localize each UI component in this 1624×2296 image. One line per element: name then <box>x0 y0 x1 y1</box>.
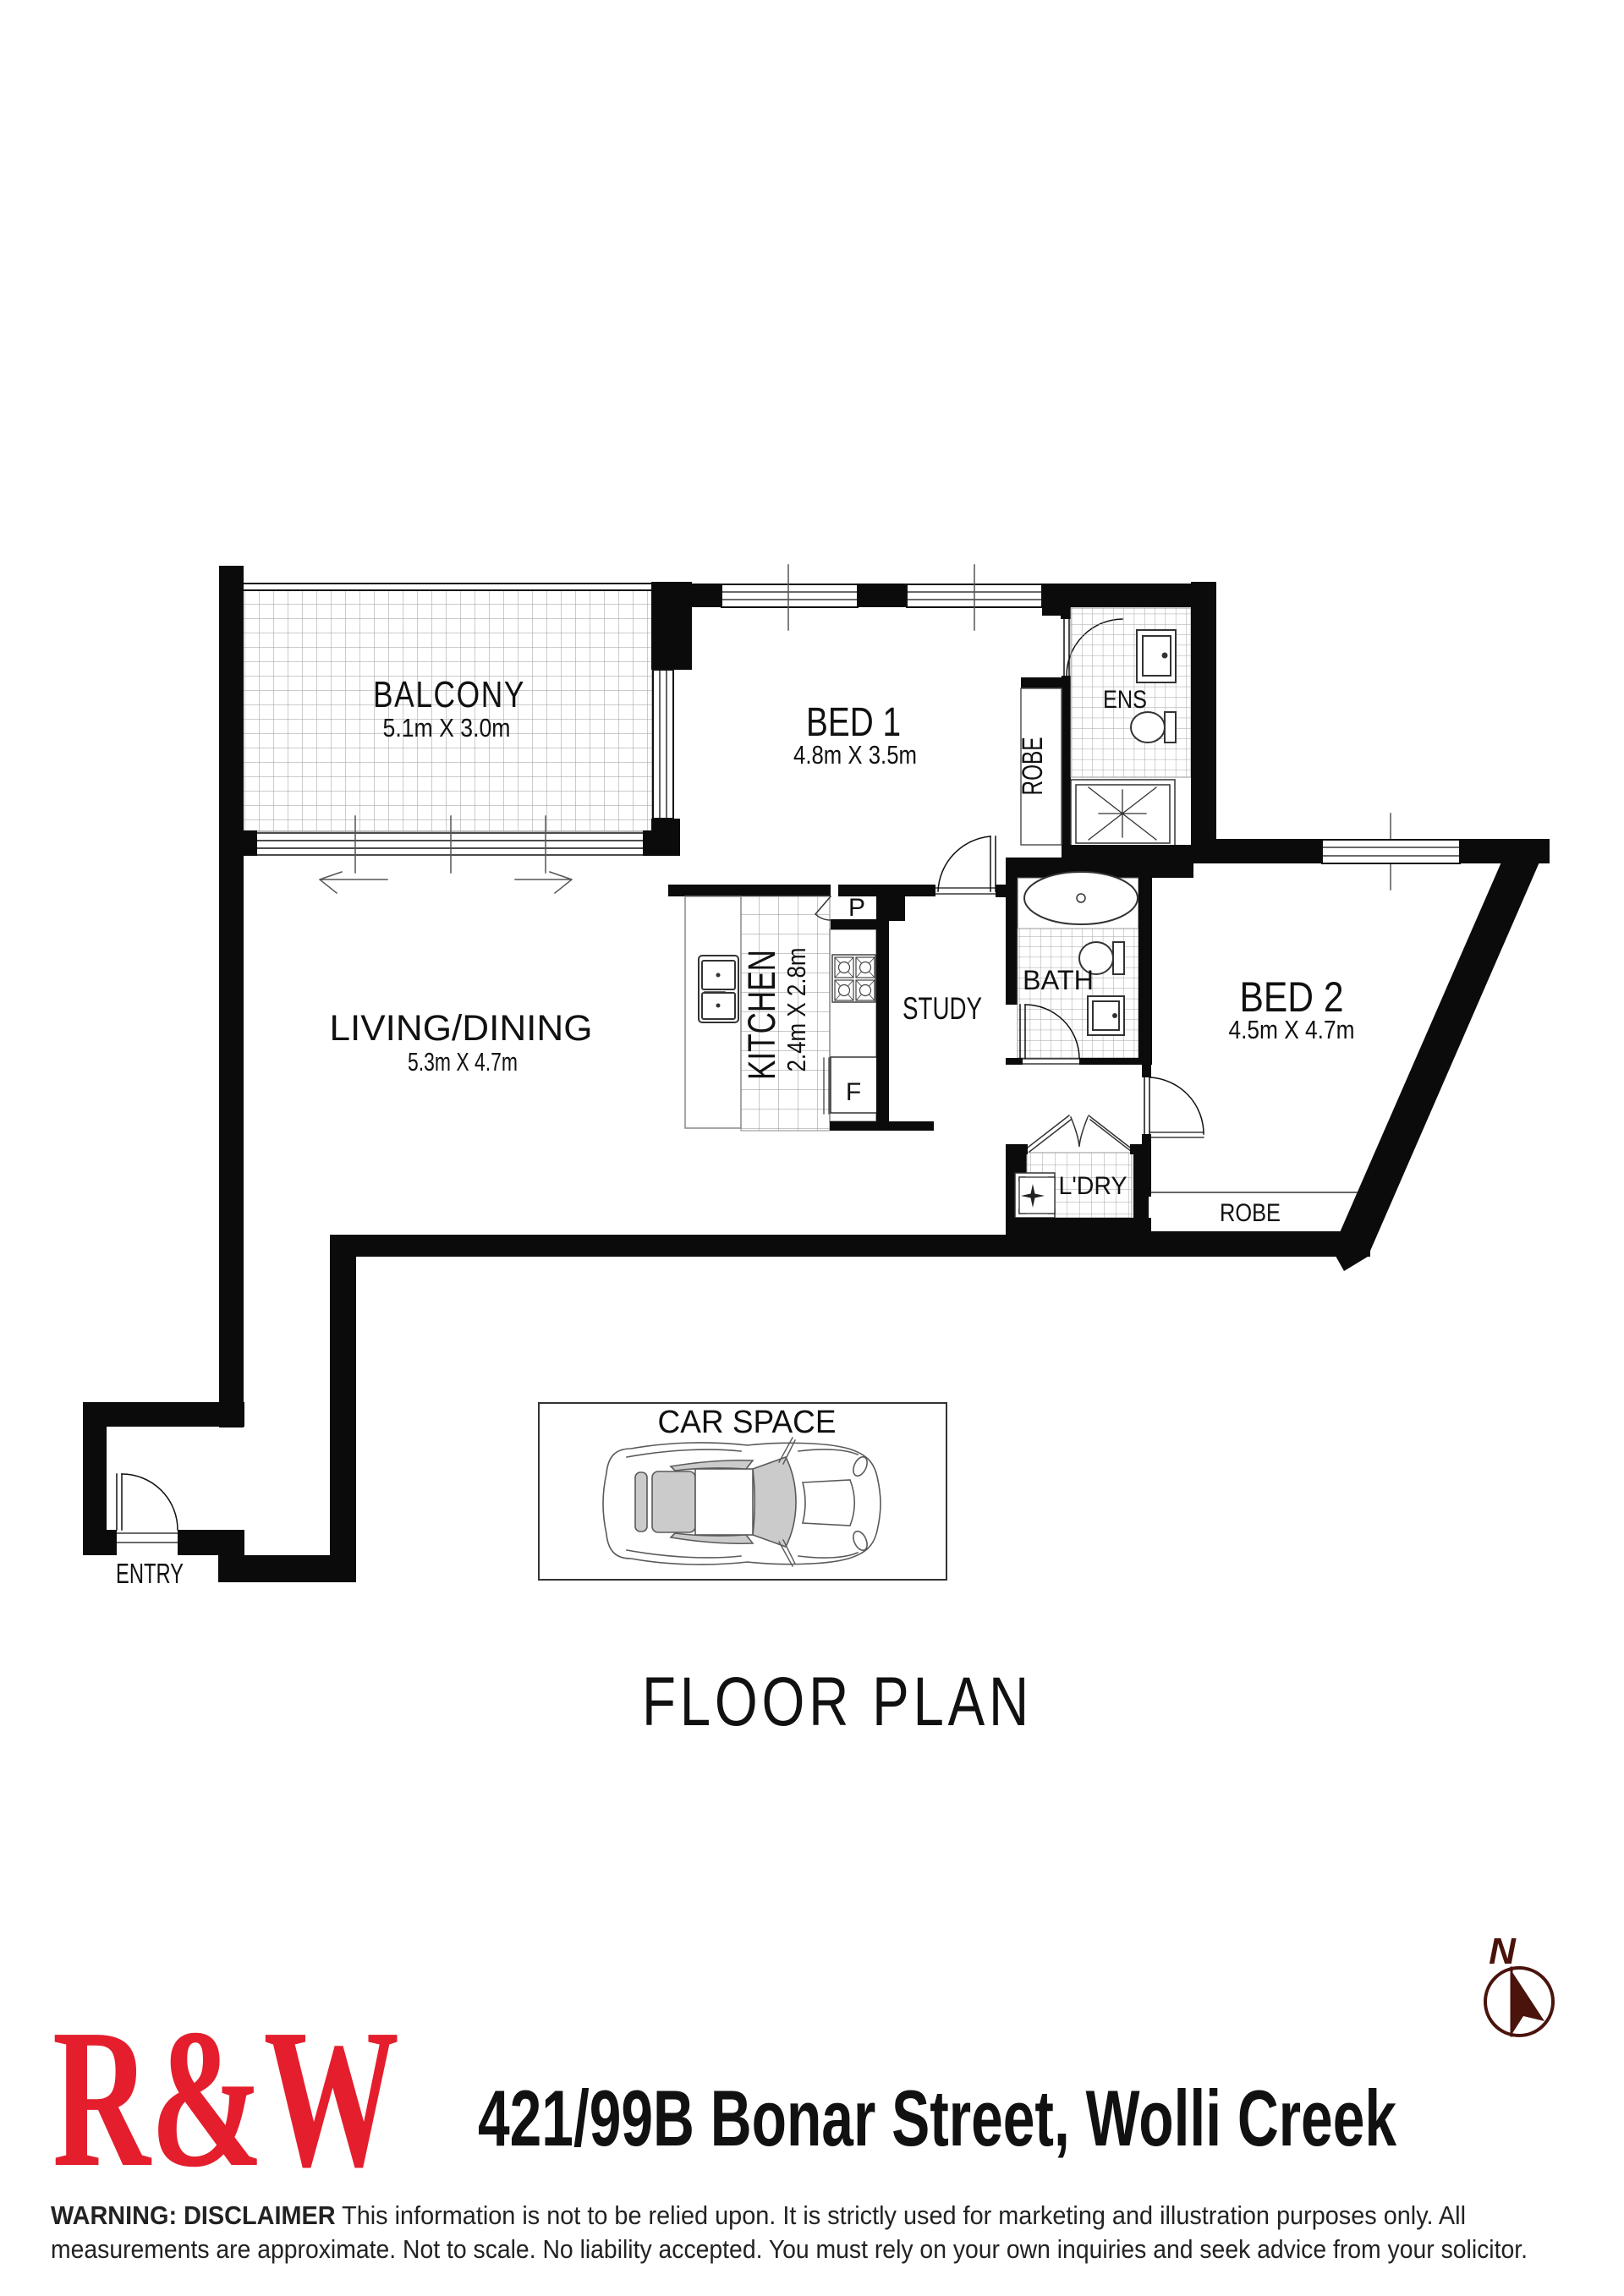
svg-text:BED 1: BED 1 <box>806 700 901 745</box>
svg-text:CAR SPACE: CAR SPACE <box>658 1405 837 1440</box>
svg-text:R&W: R&W <box>52 1988 399 2208</box>
svg-text:5.1m X 3.0m: 5.1m X 3.0m <box>383 713 511 743</box>
svg-text:ENTRY: ENTRY <box>116 1558 184 1589</box>
svg-text:4.8m X 3.5m: 4.8m X 3.5m <box>793 740 917 770</box>
svg-text:2.4m X 2.8m: 2.4m X 2.8m <box>782 948 811 1072</box>
svg-text:STUDY: STUDY <box>903 991 982 1026</box>
svg-text:F: F <box>846 1078 861 1106</box>
svg-text:ROBE: ROBE <box>1017 737 1049 796</box>
svg-text:KITCHEN: KITCHEN <box>740 950 783 1080</box>
svg-text:ROBE: ROBE <box>1220 1199 1281 1227</box>
svg-text:421/99B Bonar Street, Wolli Cr: 421/99B Bonar Street, Wolli Creek <box>478 2074 1397 2162</box>
svg-text:L'DRY: L'DRY <box>1059 1172 1127 1200</box>
svg-text:BALCONY: BALCONY <box>373 674 525 715</box>
svg-text:5.3m X 4.7m: 5.3m X 4.7m <box>408 1047 518 1077</box>
svg-text:N: N <box>1489 1931 1517 1972</box>
svg-text:BED 2: BED 2 <box>1240 973 1344 1021</box>
svg-text:LIVING/DINING: LIVING/DINING <box>330 1008 593 1049</box>
svg-text:P: P <box>848 894 865 922</box>
svg-text:4.5m X 4.7m: 4.5m X 4.7m <box>1229 1015 1355 1044</box>
svg-text:WARNING: DISCLAIMER This info: WARNING: DISCLAIMER This information is … <box>51 2200 1466 2230</box>
svg-text:ENS: ENS <box>1103 686 1147 714</box>
svg-text:BATH: BATH <box>1023 965 1094 995</box>
svg-text:FLOOR PLAN: FLOOR PLAN <box>642 1663 1033 1740</box>
svg-text:measurements are approximate.: measurements are approximate. Not to sca… <box>51 2234 1528 2264</box>
